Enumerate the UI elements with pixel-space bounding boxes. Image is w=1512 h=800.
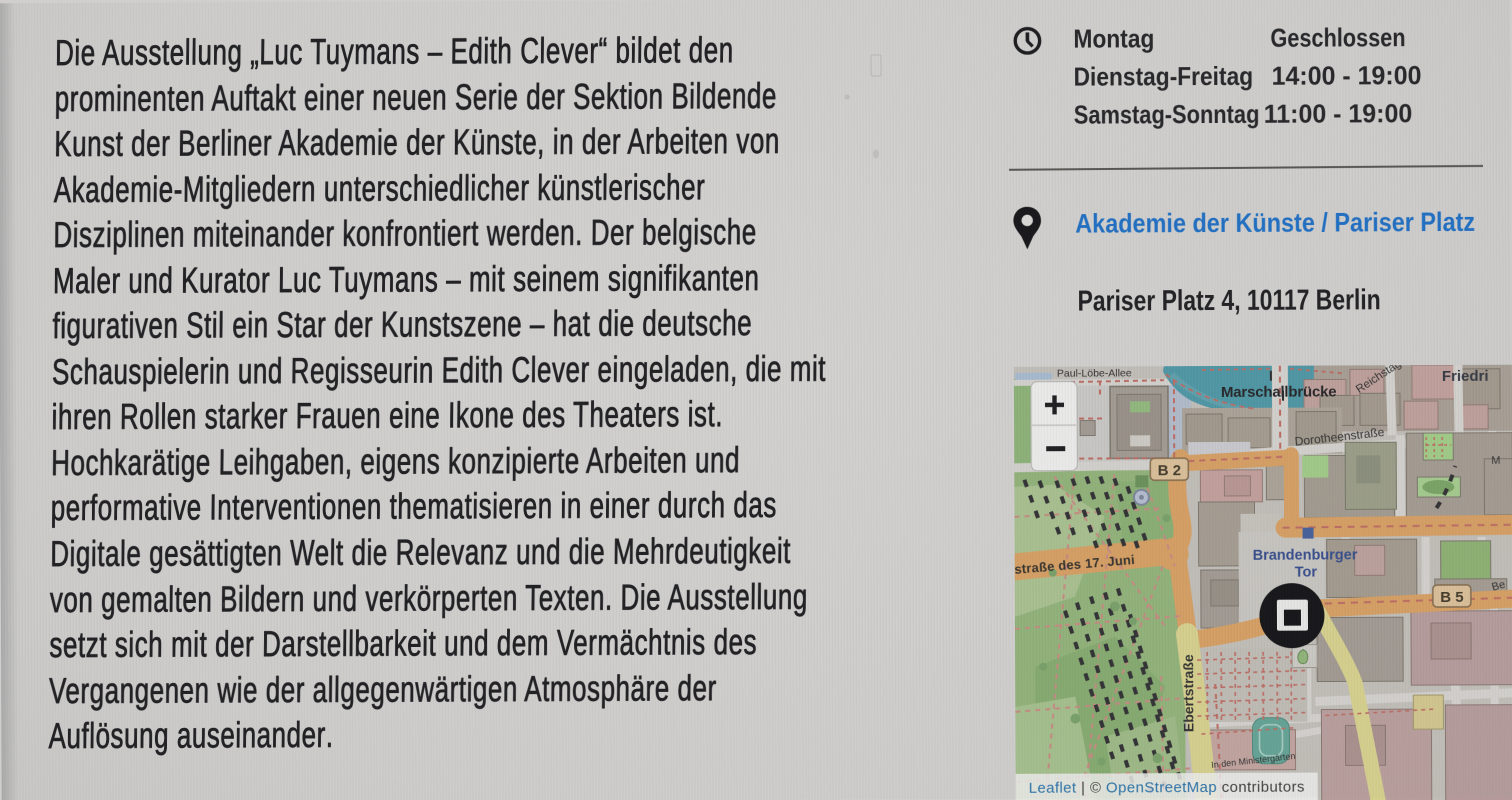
svg-text:M: M xyxy=(1491,455,1500,467)
svg-text:Tor: Tor xyxy=(1295,565,1318,581)
svg-text:Marschallbrücke: Marschallbrücke xyxy=(1221,383,1336,401)
svg-text:Brandenburger: Brandenburger xyxy=(1253,547,1358,563)
svg-text:B 2: B 2 xyxy=(1158,462,1181,479)
svg-text:B 5: B 5 xyxy=(1440,589,1463,606)
svg-text:Friedri: Friedri xyxy=(1442,368,1489,385)
svg-text:Leaflet | © OpenStreetMap cont: Leaflet | © OpenStreetMap contributors xyxy=(1029,779,1305,797)
svg-text:Ebertstraße: Ebertstraße xyxy=(1180,654,1196,732)
svg-text:Paul-Löbe-Allee: Paul-Löbe-Allee xyxy=(1057,367,1132,379)
